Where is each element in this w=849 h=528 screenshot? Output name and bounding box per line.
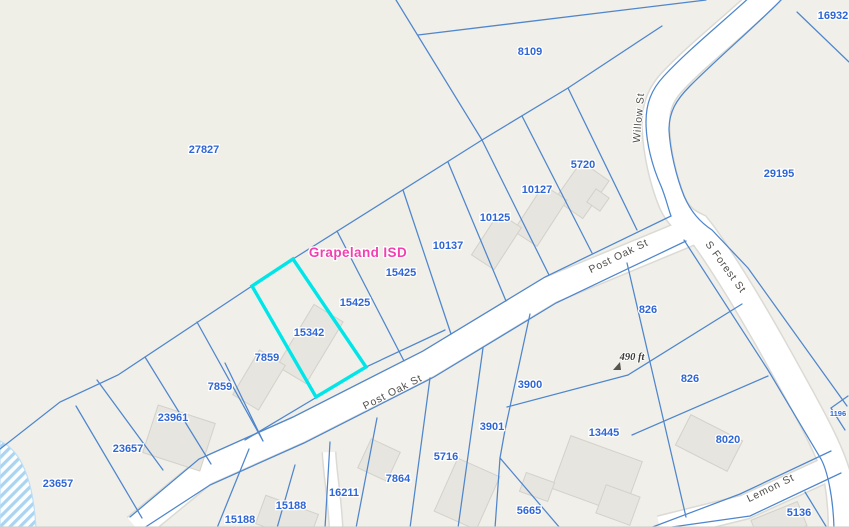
parcel-label: 826 <box>639 304 657 316</box>
parcel-label: 15425 <box>340 297 371 309</box>
parcel-label: 5716 <box>434 451 458 463</box>
parcel-label: 15342 <box>294 327 325 339</box>
map-canvas[interactable]: 490 ft 169328109278272919557201012710125… <box>0 0 849 528</box>
district-label: Grapeland ISD <box>309 245 407 260</box>
parcel-label: 5720 <box>571 159 595 171</box>
parcel-label: 7859 <box>255 352 279 364</box>
parcel-label: 7864 <box>386 473 411 485</box>
parcel-label: 3901 <box>480 421 504 433</box>
parcel-label: 23657 <box>43 478 74 490</box>
parcel-label: 826 <box>681 373 699 385</box>
parcel-label: 5665 <box>517 505 541 517</box>
parcel-label: 10137 <box>433 240 464 252</box>
map-viewport[interactable]: 490 ft 169328109278272919557201012710125… <box>0 0 849 528</box>
parcel-label: 10127 <box>522 184 553 196</box>
parcel-label: 16211 <box>329 487 359 499</box>
parcel-label: 23961 <box>158 412 189 424</box>
parcel-label: 29195 <box>764 168 795 180</box>
parcel-label: 7859 <box>208 381 232 393</box>
parcel-label: 15188 <box>225 514 256 526</box>
parcel-label: 3900 <box>518 379 542 391</box>
parcel-label: 1196 <box>830 409 846 418</box>
measurement-label: 490 ft <box>619 352 646 363</box>
parcel-label: 23657 <box>113 443 144 455</box>
parcel-label: 13445 <box>589 427 620 439</box>
parcel-label: 27827 <box>189 144 220 156</box>
parcel-label: 8109 <box>518 46 542 58</box>
parcel-label: 16932 <box>818 10 849 22</box>
parcel-label: 15425 <box>386 267 417 279</box>
parcel-label: 15188 <box>276 500 307 512</box>
parcel-label: 8020 <box>716 434 740 446</box>
parcel-label: 10125 <box>480 212 511 224</box>
parcel-label: 5136 <box>787 507 811 519</box>
